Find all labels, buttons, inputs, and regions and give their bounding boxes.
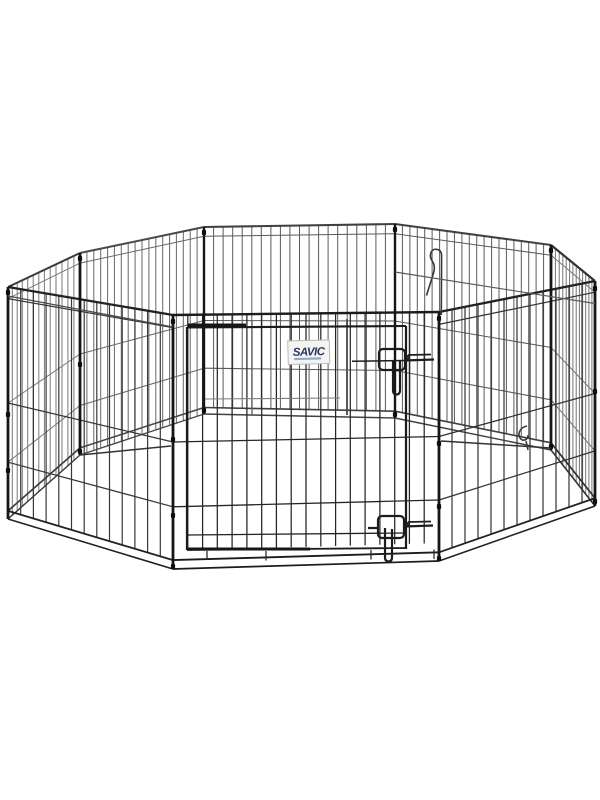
svg-text:SAVIC: SAVIC — [293, 346, 326, 359]
